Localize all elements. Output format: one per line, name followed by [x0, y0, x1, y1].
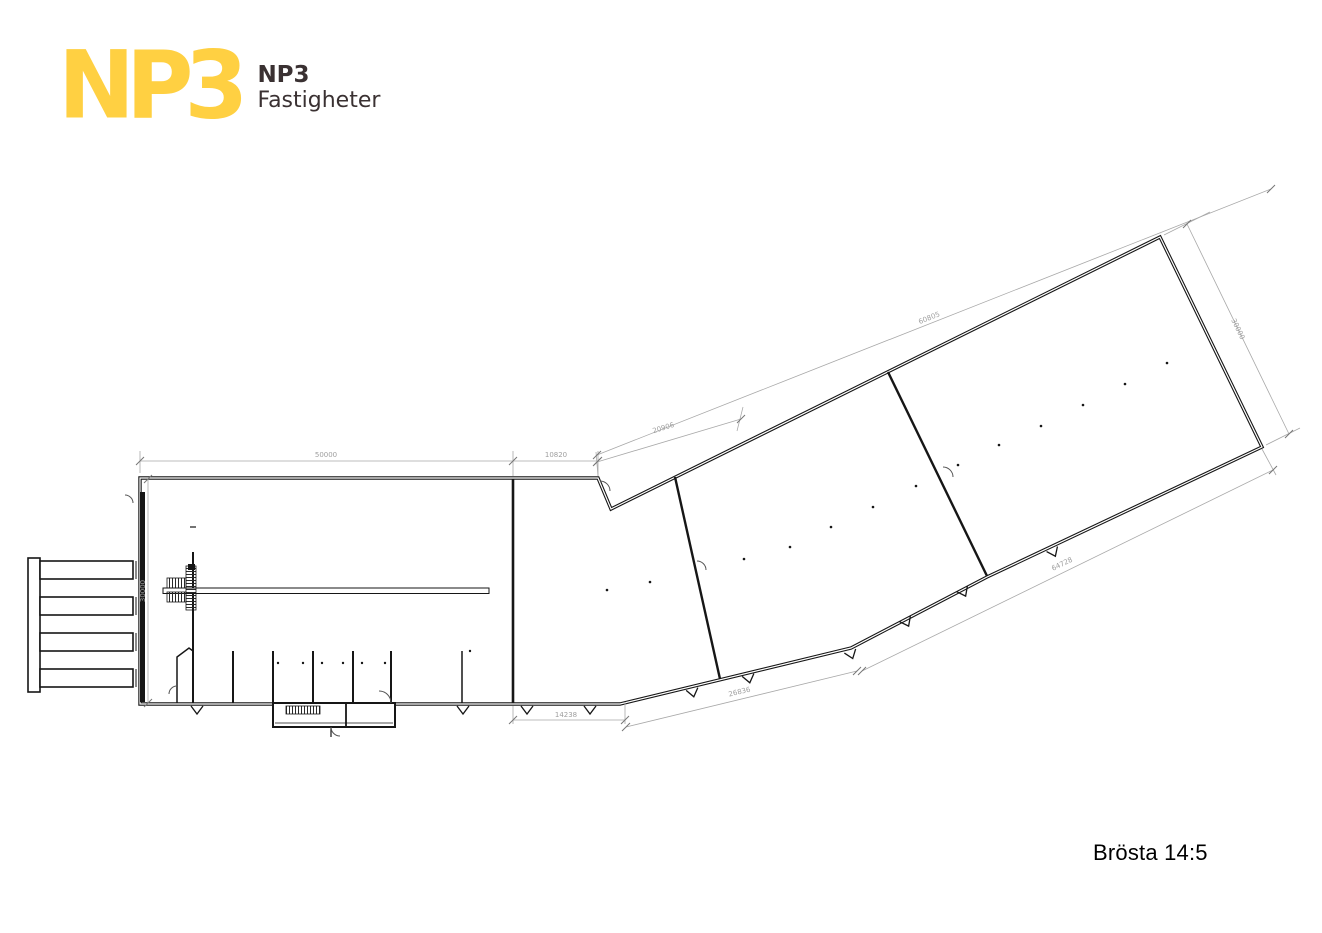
dim-right-height: 30000 [1229, 317, 1246, 341]
dim-top-main: 50000 [315, 451, 337, 459]
dim-bottom-right: 64728 [1050, 556, 1074, 573]
building-outline [140, 237, 1262, 704]
floorplan-drawing: 50000 10820 30000 14238 26836 64728 2090… [0, 0, 1322, 933]
dim-bottom-left: 14238 [555, 711, 577, 719]
dim-bottom-mid: 26836 [728, 685, 752, 698]
dim-left-height: 30000 [139, 580, 147, 602]
loading-docks [28, 558, 136, 692]
dim-diag-segment: 20906 [652, 421, 676, 435]
property-title: Brösta 14:5 [1093, 840, 1208, 866]
annex-room [273, 703, 395, 737]
dim-top-ext: 10820 [545, 451, 567, 459]
